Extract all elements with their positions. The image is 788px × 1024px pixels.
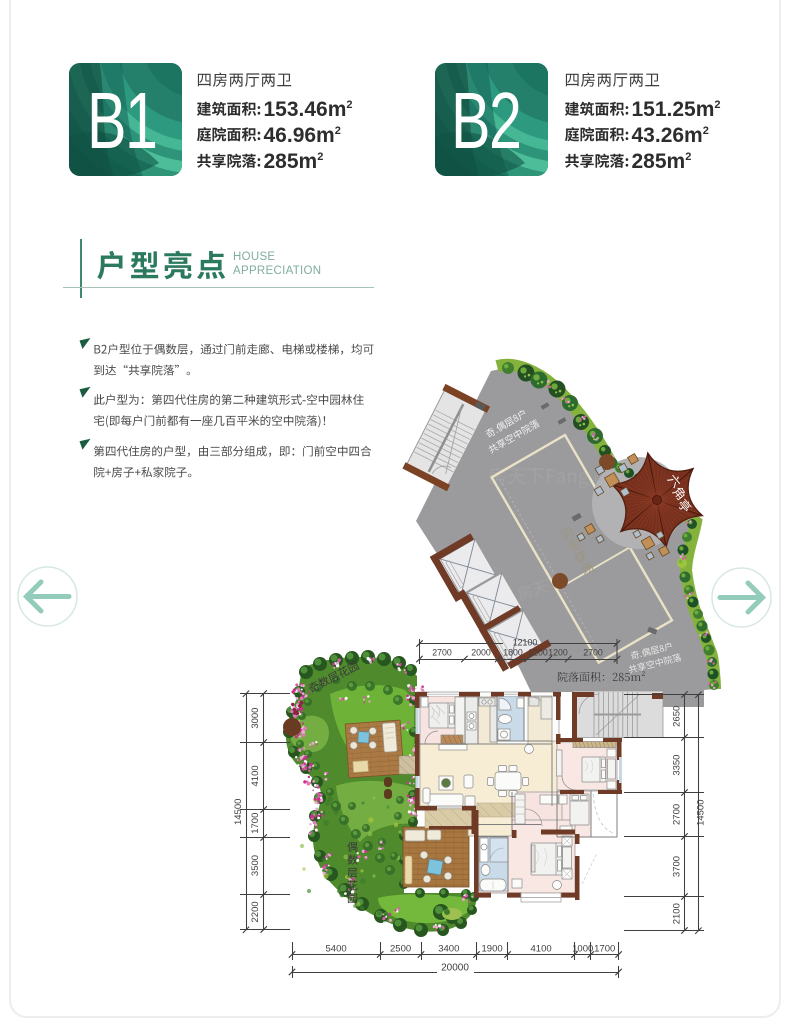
svg-text:3400: 3400 [438, 944, 459, 955]
svg-text:2500: 2500 [390, 944, 411, 955]
svg-text:1800: 1800 [503, 648, 523, 658]
svg-text:5400: 5400 [326, 944, 347, 955]
svg-text:4100: 4100 [531, 944, 552, 955]
svg-text:1200: 1200 [528, 648, 548, 658]
svg-text:14500: 14500 [233, 799, 244, 825]
svg-text:1700: 1700 [250, 813, 261, 834]
svg-text:3350: 3350 [672, 755, 683, 776]
svg-text:3700: 3700 [672, 856, 683, 877]
svg-text:1200: 1200 [548, 648, 568, 658]
svg-text:1000: 1000 [572, 944, 593, 955]
svg-text:12100: 12100 [513, 638, 538, 648]
svg-text:2100: 2100 [672, 903, 683, 924]
svg-text:2650: 2650 [672, 706, 683, 727]
svg-text:3500: 3500 [250, 855, 261, 876]
svg-text:2700: 2700 [432, 648, 452, 658]
svg-text:2000: 2000 [471, 648, 491, 658]
svg-text:1700: 1700 [594, 944, 615, 955]
svg-text:3000: 3000 [250, 708, 261, 729]
svg-text:2200: 2200 [250, 901, 261, 922]
svg-text:4100: 4100 [250, 765, 261, 786]
svg-text:20000: 20000 [441, 963, 469, 974]
svg-text:1900: 1900 [482, 944, 503, 955]
svg-text:14500: 14500 [696, 799, 707, 825]
svg-text:2700: 2700 [672, 804, 683, 825]
svg-text:2700: 2700 [583, 648, 603, 658]
